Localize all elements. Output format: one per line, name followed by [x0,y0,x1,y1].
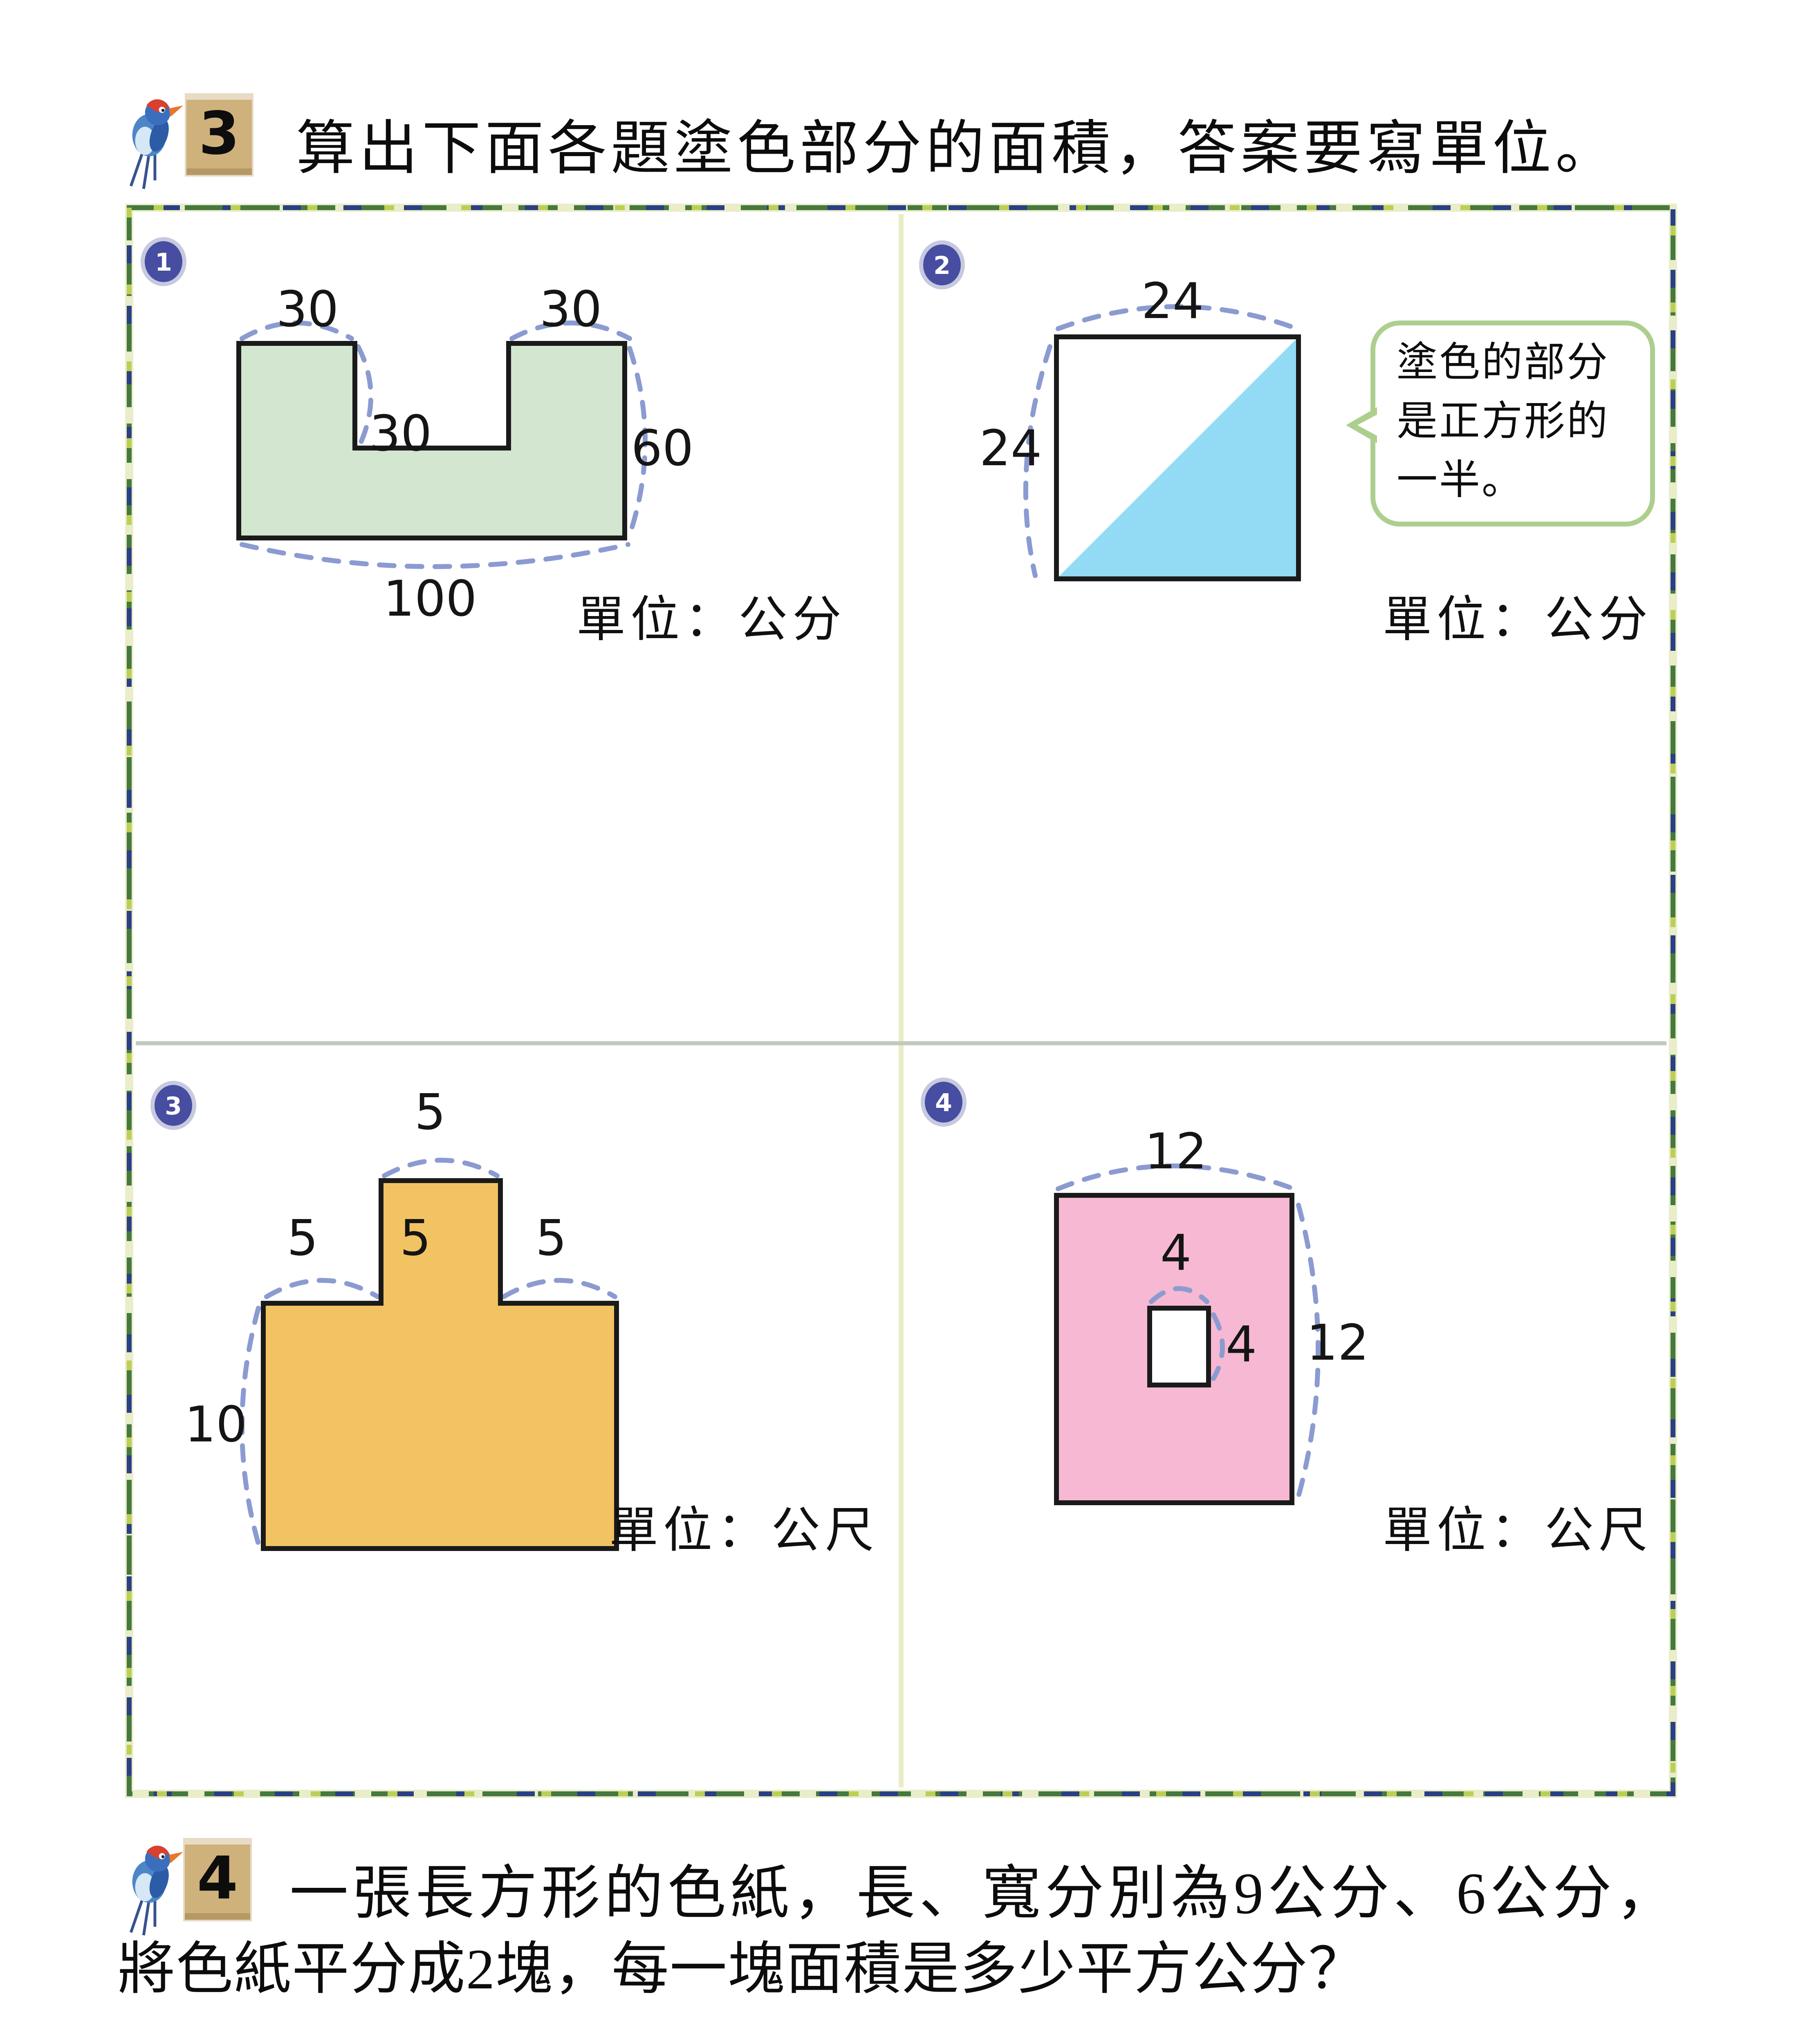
unit-label: 單位：公分 [1383,579,1653,651]
exercise-4-number-box: 4 [185,1840,250,1920]
dimension-label: 24 [1141,274,1204,331]
dim-arc [504,1280,615,1297]
badge-number: 4 [935,1087,952,1117]
problem-1-badge: 1 [145,241,182,282]
dim-arc [358,347,371,445]
badge-number: 2 [933,250,951,280]
bird-beak [169,1852,183,1863]
dimension-label: 24 [980,421,1042,478]
exercise-4-text-line2: 將色紙平分成2塊，每一塊面積是多少平方公分？ [118,1923,1366,2006]
dimension-label: 30 [540,282,602,339]
page-viewport: 3 算出下面各題塗色部分的面積，答案要寫單位。 1 30 30 30 60 [0,0,1812,2044]
dimension-label: 10 [185,1397,247,1455]
exercise-4-text-line1: 一張長方形的色紙，長、寬分別為9公分、6公分， [289,1846,1679,1931]
speech-bubble: 塗色的部分 是正方形的 一半。 [1370,320,1655,527]
bird-icon [121,88,183,196]
dimension-label: 30 [370,406,432,464]
unit-label: 單位：公尺 [1383,1490,1653,1562]
bird-pupil [161,109,165,112]
dimension-label: 5 [536,1211,567,1268]
dimension-label: 30 [276,282,339,339]
problems-box: 1 30 30 30 60 100 單位：公分 2 24 24 [123,201,1680,1800]
dim-arc [242,545,628,567]
bubble-text-line: 一半。 [1397,453,1650,512]
unit-label: 單位：公分 [576,579,846,651]
bird-beak [169,105,183,117]
dimension-label: 5 [400,1211,431,1268]
unit-label: 單位：公尺 [609,1490,879,1562]
bubble-text-line: 塗色的部分 [1397,335,1650,394]
white-hole [1150,1308,1209,1385]
dim-arc [384,1160,497,1176]
textbook-page: 3 算出下面各題塗色部分的面積，答案要寫單位。 1 30 30 30 60 [0,0,1812,2044]
exercise-4-number: 4 [197,1846,238,1913]
dimension-label: 5 [415,1085,446,1142]
dimension-label: 4 [1226,1317,1257,1374]
badge-number: 3 [165,1091,182,1120]
problem-3-instruction: 算出下面各題塗色部分的面積，答案要寫單位。 [296,101,1618,186]
problem-3-number: 3 [199,101,240,168]
dimension-label: 12 [1307,1316,1369,1373]
problem-3-badge: 3 [155,1085,192,1126]
problem-2-badge: 2 [923,244,961,285]
dim-arc [267,1280,378,1297]
problem-4-badge: 4 [925,1082,962,1123]
badge-number: 1 [155,247,172,276]
bird-pupil [161,1855,165,1858]
bubble-text-line: 是正方形的 [1397,394,1650,453]
dimension-label: 5 [287,1211,318,1268]
dimension-label: 12 [1145,1124,1207,1181]
dimension-label: 4 [1160,1226,1191,1283]
dimension-label: 100 [383,572,477,629]
dimension-label: 60 [631,421,694,478]
problem-3-number-box: 3 [186,95,252,175]
